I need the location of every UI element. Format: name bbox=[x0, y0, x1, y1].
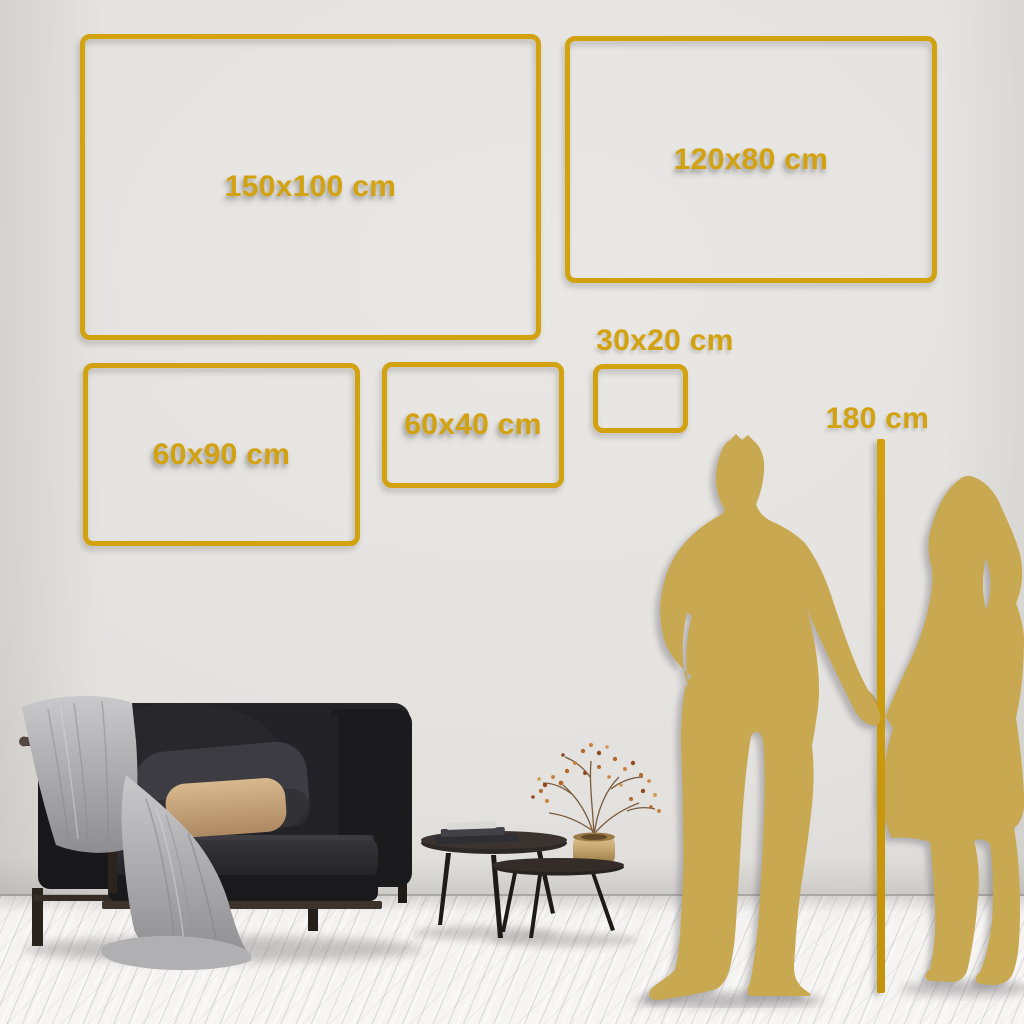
size-label-150x100: 150x100 cm bbox=[225, 170, 397, 204]
size-box-30x20 bbox=[593, 364, 688, 433]
sofa-icon bbox=[8, 683, 432, 1018]
size-box-60x40: 60x40 cm bbox=[382, 362, 564, 488]
size-label-60x40: 60x40 cm bbox=[404, 408, 542, 442]
size-box-60x90: 60x90 cm bbox=[83, 363, 360, 546]
size-label-30x20: 30x20 cm bbox=[570, 324, 760, 358]
small-table-top bbox=[492, 858, 624, 876]
books bbox=[434, 820, 517, 844]
size-box-120x80: 120x80 cm bbox=[565, 36, 937, 283]
size-label-60x90: 60x90 cm bbox=[153, 438, 291, 472]
size-label-120x80: 120x80 cm bbox=[674, 143, 829, 177]
size-box-150x100: 150x100 cm bbox=[80, 34, 541, 340]
man-silhouette-icon bbox=[630, 430, 1024, 1008]
size-guide-scene: 150x100 cm 120x80 cm 60x90 cm 60x40 cm 3… bbox=[0, 0, 1024, 1024]
